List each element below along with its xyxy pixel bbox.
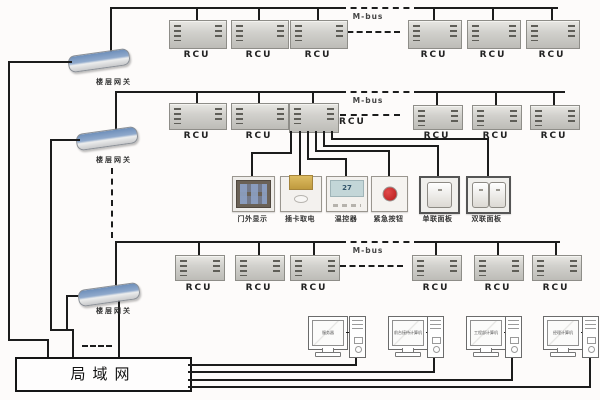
drive-bays-icon: [585, 320, 596, 330]
floor-continuation-dashed: [111, 168, 113, 238]
wire: [299, 131, 301, 176]
rcu-unit: [175, 255, 225, 281]
rcu-label: RCU: [530, 131, 578, 141]
rcu-ports-icon: [535, 110, 542, 126]
topology-diagram: M-bus RCU RCU RCU RCU RCU RCU 楼层网关 M-bus…: [0, 0, 600, 400]
computer-tower: [505, 316, 522, 358]
rcu-unit: [532, 255, 582, 281]
rcu-unit: [231, 103, 289, 130]
card-power-switch-device: [280, 176, 322, 212]
wire: [196, 92, 198, 103]
rcu-label: RCU: [408, 50, 460, 60]
wire: [198, 242, 200, 255]
rcu-ports-icon: [174, 108, 181, 124]
thermostat-device: 27: [326, 176, 368, 212]
wire: [251, 152, 292, 154]
wire: [307, 158, 347, 160]
rcu-label: RCU: [235, 283, 283, 293]
wire: [331, 138, 489, 140]
rcu-ports-icon: [240, 260, 247, 276]
vent-icon: [355, 346, 362, 353]
wire: [388, 150, 390, 176]
single-switch-panel-device: [419, 176, 460, 214]
wire: [307, 131, 309, 158]
wire: [50, 139, 80, 141]
monitor: 服务器: [308, 316, 348, 350]
wire: [433, 8, 435, 20]
wire: [435, 242, 437, 255]
rcu-label: RCU: [231, 131, 287, 141]
rcu-ports-icon: [277, 25, 284, 37]
monitor-screen: 经理计算机: [547, 320, 579, 346]
display-segments-icon: [240, 184, 267, 204]
rcu-ports-icon: [509, 25, 516, 37]
rcu-unit: [290, 255, 340, 281]
rocker-icon: [489, 182, 506, 208]
wire: [188, 379, 513, 381]
rcu-unit-room-controller: [289, 103, 339, 133]
power-button-icon: [587, 337, 596, 344]
wire: [110, 7, 112, 55]
gateway-label: 楼层网关: [84, 155, 144, 165]
rcu-ports-icon: [215, 108, 222, 120]
rcu-label: RCU: [231, 50, 287, 60]
drive-bays-icon: [508, 320, 519, 330]
rcu-ports-icon: [213, 260, 220, 272]
thermostat-buttons-icon: [333, 204, 361, 207]
rcu-ports-icon: [472, 25, 479, 41]
rcu-ports-icon: [479, 260, 486, 276]
monitor: 工程部计算机: [466, 316, 506, 350]
monitor: 经理计算机: [543, 316, 583, 350]
rcu-label: RCU: [339, 117, 371, 127]
emergency-button-device: [371, 176, 408, 212]
card-slot-icon: [294, 195, 308, 203]
rcu-ports-icon: [568, 110, 575, 122]
rcu-label: RCU: [169, 131, 225, 141]
wire: [8, 61, 10, 341]
wire: [313, 242, 315, 255]
wire: [315, 131, 317, 150]
rcu-label: RCU: [169, 50, 225, 60]
wire: [50, 139, 52, 331]
thermostat-lcd: 27: [330, 180, 364, 197]
rcu-unit: [169, 103, 227, 130]
device-label: 紧急按钮: [368, 214, 409, 224]
rcu-unit: [413, 105, 463, 130]
rcu-unit: [235, 255, 285, 281]
device-label: 单联面板: [416, 214, 459, 224]
rcu-ports-icon: [277, 108, 284, 120]
wire: [345, 158, 347, 176]
wire: [315, 150, 390, 152]
power-button-icon: [432, 337, 441, 344]
indicator-dot-icon: [496, 189, 500, 191]
rcu-label: RCU: [290, 283, 338, 293]
floor-gateway-device: [77, 282, 141, 307]
red-button-icon: [382, 187, 397, 202]
rcu-unit: [530, 105, 580, 130]
row-continuation-dashed: [340, 265, 403, 267]
rcu-ports-icon: [418, 110, 425, 126]
device-label: 双联面板: [464, 214, 509, 224]
computer-tower: [349, 316, 366, 358]
rcu-ports-icon: [531, 25, 538, 41]
rcu-ports-icon: [328, 260, 335, 272]
rcu-unit: [231, 20, 289, 49]
rcu-unit: [290, 20, 348, 49]
row-continuation-dashed: [340, 114, 400, 116]
wire: [433, 356, 435, 373]
computer-tower: [427, 316, 444, 358]
rcu-ports-icon: [180, 260, 187, 276]
rcu-ports-icon: [451, 110, 458, 122]
rcu-label: RCU: [290, 50, 346, 60]
lan-box: 局域网: [15, 357, 192, 392]
wire: [72, 329, 74, 357]
wire: [323, 145, 439, 147]
rcu-unit: [467, 20, 521, 49]
monitor: 前台接待计算机: [388, 316, 428, 350]
rcu-unit: [408, 20, 462, 49]
wire: [115, 91, 117, 132]
rcu-ports-icon: [336, 25, 343, 37]
wire: [511, 356, 513, 381]
door-display-screen: [236, 180, 271, 208]
door-display-device: [232, 176, 275, 212]
rcu-unit: [526, 20, 580, 49]
monitor-base: [395, 352, 421, 357]
mbus-label: M-bus: [348, 96, 388, 105]
rcu-ports-icon: [295, 25, 302, 41]
rcu-label: RCU: [175, 283, 223, 293]
bus-line-dashed: [340, 91, 420, 93]
wire: [258, 92, 260, 103]
rcu-unit: [472, 105, 522, 130]
bus-line-dashed: [340, 7, 420, 9]
rcu-ports-icon: [450, 25, 457, 37]
rcu-unit: [474, 255, 524, 281]
rcu-ports-icon: [327, 108, 334, 120]
bus-line: [420, 241, 560, 243]
rcu-label: RCU: [467, 50, 519, 60]
key-card-icon: [289, 175, 313, 190]
rcu-ports-icon: [450, 260, 457, 272]
gateway-label: 楼层网关: [84, 77, 144, 87]
wire: [188, 386, 591, 388]
lan-continuation-dashed: [82, 345, 112, 347]
rcu-ports-icon: [413, 25, 420, 41]
vent-icon: [588, 346, 595, 353]
wire: [555, 242, 557, 255]
wire: [331, 131, 333, 138]
rcu-label: RCU: [532, 283, 580, 293]
rcu-ports-icon: [174, 25, 181, 41]
rcu-ports-icon: [512, 260, 519, 272]
rcu-ports-icon: [294, 108, 301, 124]
mbus-label: M-bus: [348, 12, 388, 21]
bus-line: [115, 241, 340, 243]
rcu-label: RCU: [526, 50, 578, 60]
wire: [188, 364, 357, 366]
rcu-ports-icon: [537, 260, 544, 276]
wire: [589, 356, 591, 388]
computer-tower: [582, 316, 599, 358]
device-label: 门外显示: [230, 214, 275, 224]
wire: [290, 131, 292, 152]
bus-line: [420, 91, 565, 93]
rcu-ports-icon: [510, 110, 517, 122]
gateway-label: 楼层网关: [84, 306, 144, 316]
rcu-ports-icon: [477, 110, 484, 126]
vent-icon: [511, 346, 518, 353]
monitor-base: [315, 352, 341, 357]
power-button-icon: [510, 337, 519, 344]
monitor-screen: 工程部计算机: [470, 320, 502, 346]
wire: [47, 339, 49, 357]
device-label: 温控器: [326, 214, 366, 224]
wire: [487, 138, 489, 176]
device-label: 插卡取电: [278, 214, 322, 224]
wire: [258, 8, 260, 20]
rcu-ports-icon: [236, 108, 243, 124]
monitor-screen: 前台接待计算机: [392, 320, 424, 346]
drive-bays-icon: [352, 320, 363, 330]
wire: [251, 152, 253, 176]
wire: [8, 61, 72, 63]
power-button-icon: [354, 337, 363, 344]
wire: [8, 339, 49, 341]
rcu-ports-icon: [236, 25, 243, 41]
monitor-screen: 服务器: [312, 320, 344, 346]
bus-line: [420, 7, 558, 9]
wire: [497, 242, 499, 255]
rcu-ports-icon: [273, 260, 280, 272]
mbus-label: M-bus: [348, 246, 388, 255]
floor-gateway-device: [67, 48, 131, 73]
wire: [50, 329, 74, 331]
rcu-ports-icon: [215, 25, 222, 37]
vent-icon: [433, 346, 440, 353]
rcu-label: RCU: [474, 283, 522, 293]
wire: [436, 92, 438, 105]
rcu-ports-icon: [568, 25, 575, 37]
wire: [437, 145, 439, 176]
wire: [188, 371, 435, 373]
wire: [66, 295, 68, 331]
rcu-unit: [169, 20, 227, 49]
wire: [495, 92, 497, 105]
wire: [196, 8, 198, 20]
floor-gateway-device: [75, 126, 139, 151]
wire: [115, 241, 117, 289]
monitor-base: [473, 352, 499, 357]
wire: [312, 92, 314, 103]
indicator-dot-icon: [438, 189, 442, 191]
bus-line-dashed: [340, 241, 420, 243]
drive-bays-icon: [430, 320, 441, 330]
rcu-label: RCU: [412, 283, 460, 293]
rocker-icon: [472, 182, 489, 208]
wire: [551, 8, 553, 20]
wire: [553, 92, 555, 105]
wire: [492, 8, 494, 20]
rcu-unit: [412, 255, 462, 281]
bus-line: [110, 7, 340, 9]
wire: [323, 131, 325, 145]
indicator-dot-icon: [479, 189, 483, 191]
wire: [317, 8, 319, 20]
rocker-icon: [427, 182, 452, 208]
rcu-ports-icon: [417, 260, 424, 276]
monitor-base: [550, 352, 576, 357]
wire: [258, 242, 260, 255]
bus-line: [115, 91, 340, 93]
rcu-ports-icon: [570, 260, 577, 272]
rcu-ports-icon: [295, 260, 302, 276]
double-switch-panel-device: [466, 176, 511, 214]
